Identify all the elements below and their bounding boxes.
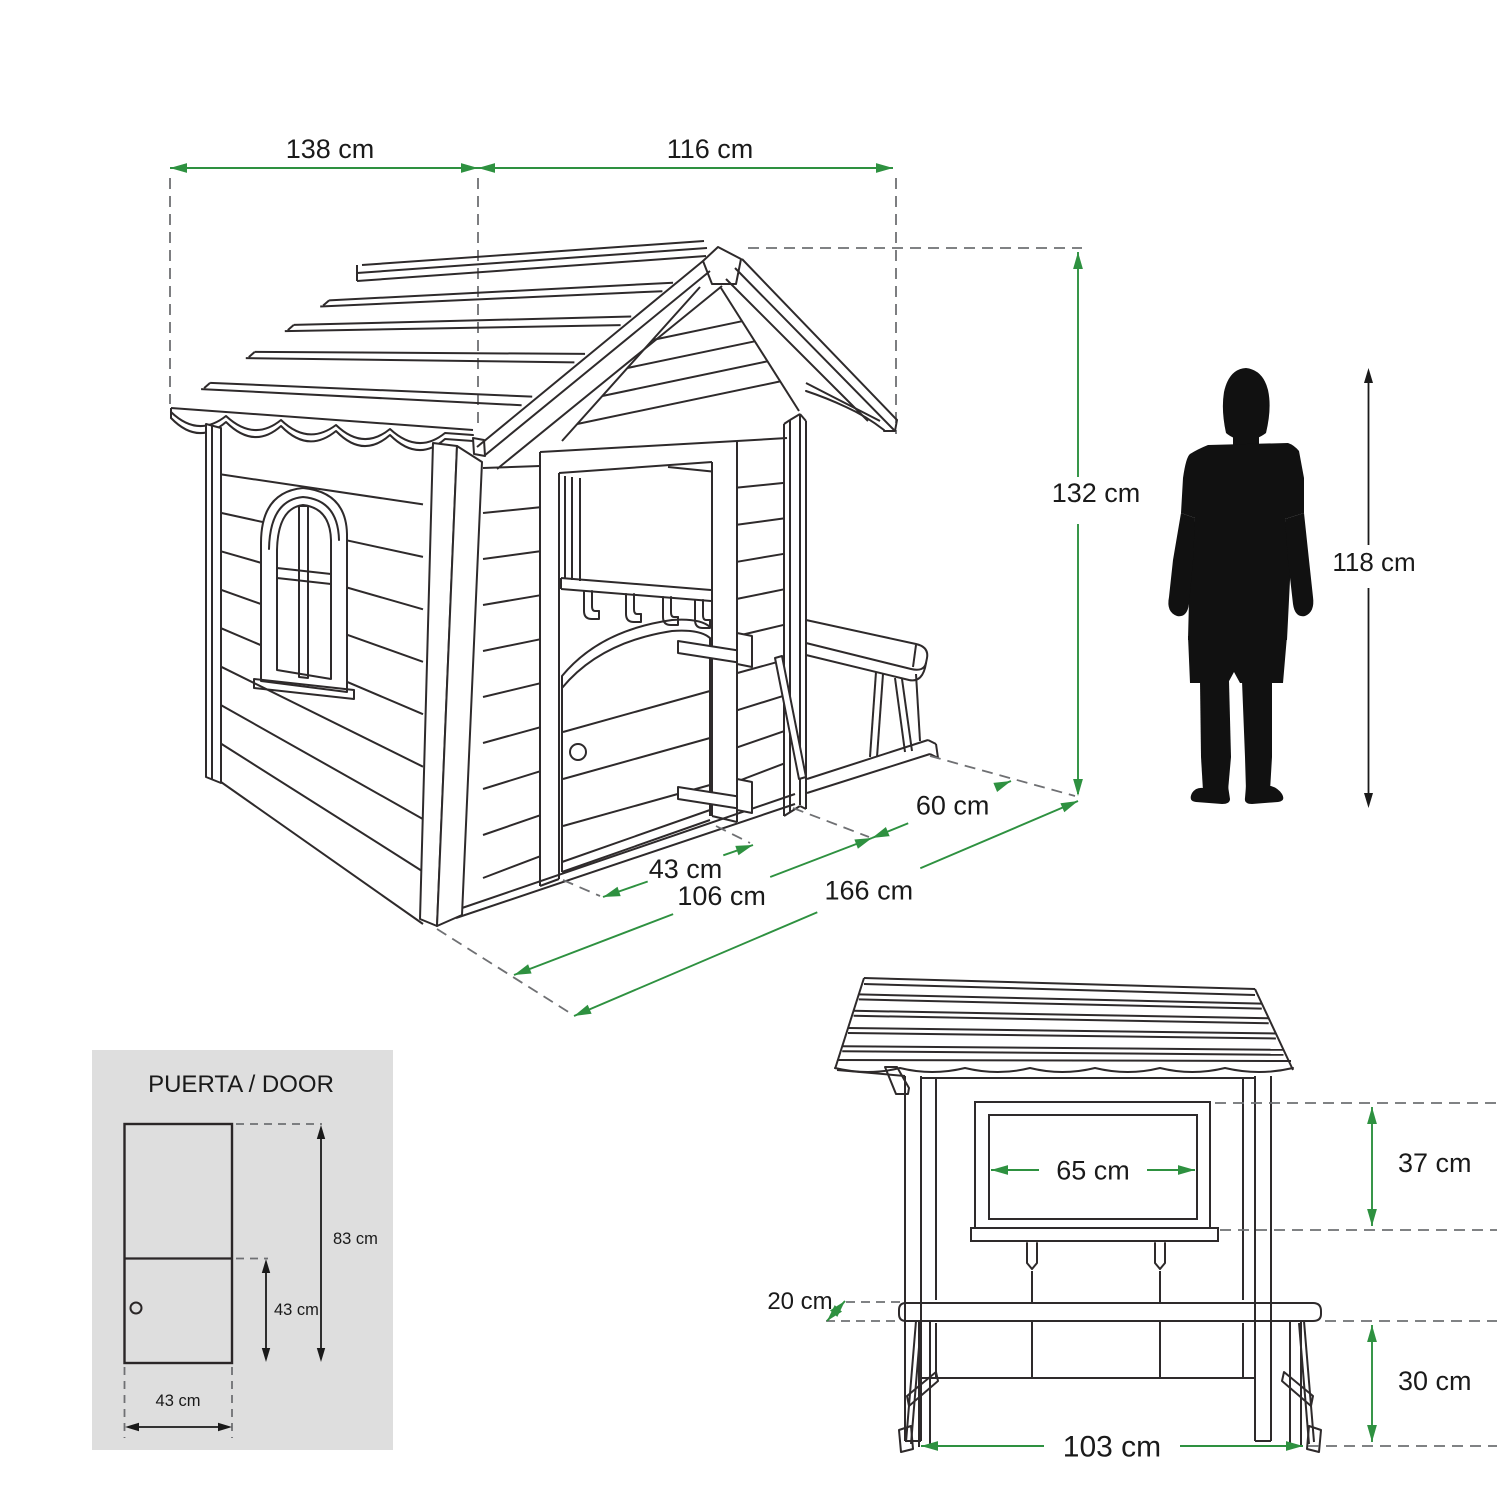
svg-text:30 cm: 30 cm (1398, 1366, 1472, 1396)
svg-text:118 cm: 118 cm (1332, 547, 1415, 577)
svg-text:166 cm: 166 cm (825, 876, 914, 906)
svg-text:43 cm: 43 cm (274, 1301, 319, 1319)
svg-text:116 cm: 116 cm (667, 134, 754, 164)
svg-text:65 cm: 65 cm (1056, 1156, 1130, 1186)
svg-text:37 cm: 37 cm (1398, 1148, 1472, 1178)
svg-text:103 cm: 103 cm (1063, 1431, 1161, 1464)
svg-text:83 cm: 83 cm (333, 1230, 378, 1248)
svg-text:43 cm: 43 cm (649, 854, 723, 884)
svg-text:20 cm: 20 cm (767, 1288, 832, 1315)
svg-text:43 cm: 43 cm (156, 1392, 201, 1410)
svg-text:106 cm: 106 cm (677, 881, 766, 911)
svg-text:60 cm: 60 cm (916, 790, 990, 820)
svg-text:132 cm: 132 cm (1052, 478, 1141, 508)
svg-text:138 cm: 138 cm (286, 134, 375, 164)
svg-text:PUERTA / DOOR: PUERTA / DOOR (148, 1071, 334, 1098)
